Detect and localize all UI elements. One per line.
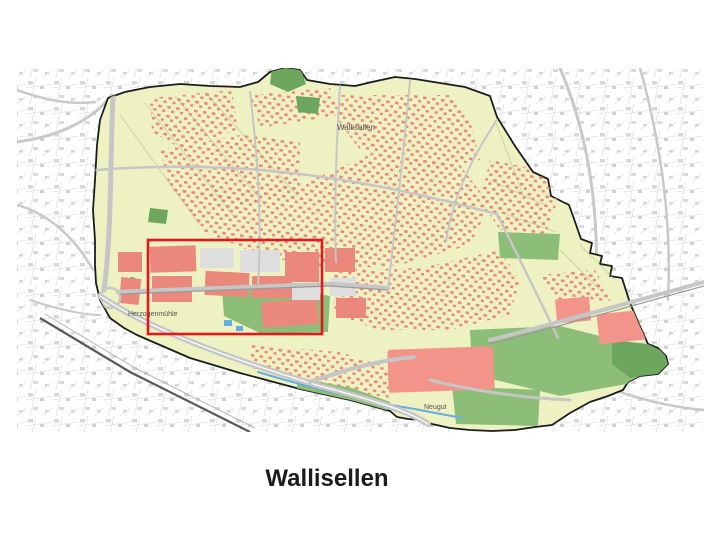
- slide-caption: Wallisellen: [0, 465, 654, 493]
- map-label-wallisellen: Wallisellen: [337, 123, 375, 132]
- map-container: Wallisellen Herzogenmühle Neugut: [0, 0, 720, 540]
- map-label-herzogenmuehle: Herzogenmühle: [128, 311, 178, 318]
- presentation-slide: Wallisellen Herzogenmühle Neugut Wallise…: [0, 0, 720, 540]
- map-label-neugut: Neugut: [424, 404, 447, 411]
- zoning-map: Wallisellen Herzogenmühle Neugut: [0, 0, 720, 540]
